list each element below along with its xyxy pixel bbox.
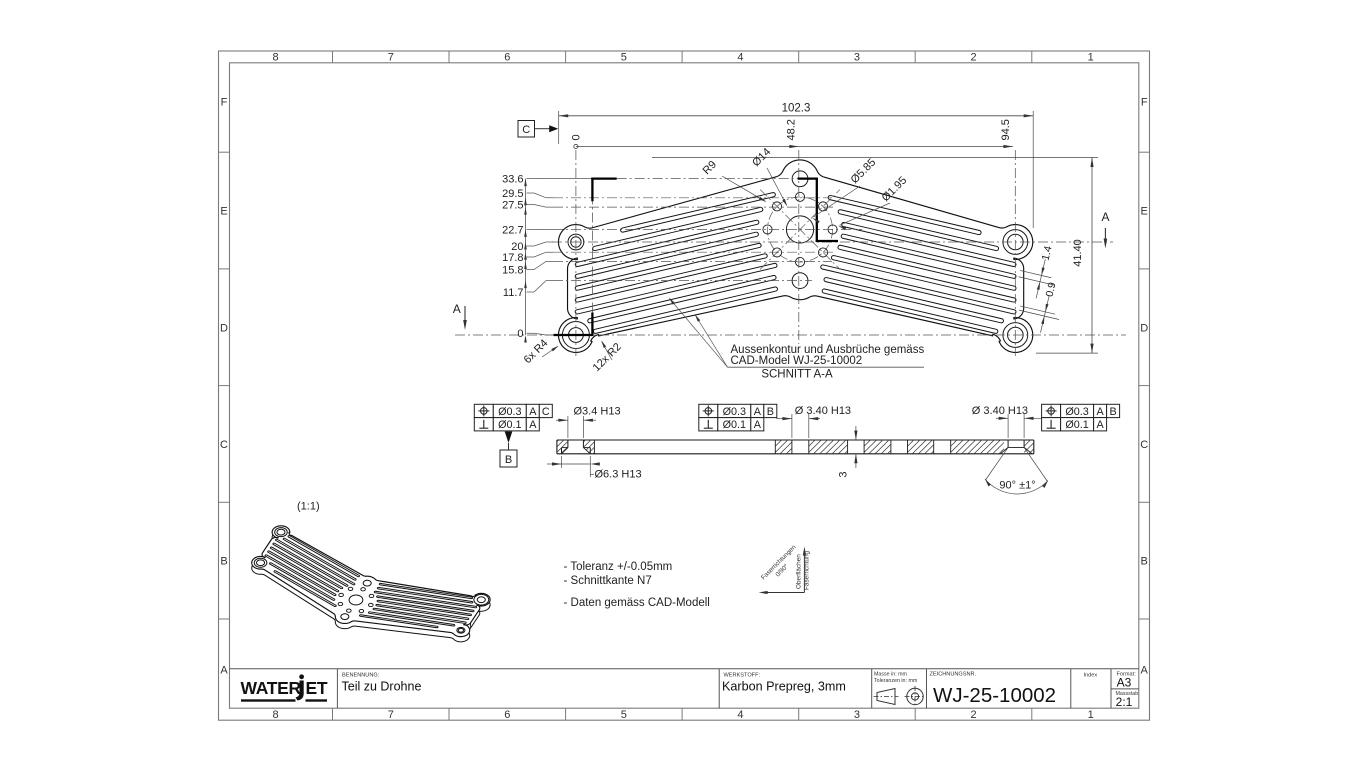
svg-text:48.2: 48.2	[786, 119, 798, 140]
svg-text:Masse in: mm: Masse in: mm	[874, 672, 908, 678]
svg-text:17.8: 17.8	[502, 252, 523, 264]
svg-text:Ø0.1: Ø0.1	[723, 419, 746, 431]
svg-text:(1:1): (1:1)	[297, 501, 320, 513]
svg-text:Index: Index	[1084, 673, 1098, 679]
svg-text:- Toleranz +/-0.05mm: - Toleranz +/-0.05mm	[564, 561, 673, 573]
svg-text:41.40: 41.40	[1072, 239, 1084, 267]
svg-text:A: A	[1141, 665, 1149, 677]
svg-text:Teil zu Drohne: Teil zu Drohne	[342, 680, 422, 694]
svg-text:29.5: 29.5	[502, 188, 523, 200]
svg-text:2:1: 2:1	[1116, 695, 1133, 709]
svg-text:B: B	[220, 556, 227, 568]
svg-text:Toleranzen in: mm: Toleranzen in: mm	[874, 678, 918, 684]
svg-text:D: D	[220, 322, 228, 334]
svg-text:15.8: 15.8	[502, 264, 523, 276]
svg-text:7: 7	[388, 52, 394, 64]
svg-text:3: 3	[854, 52, 860, 64]
svg-text:A3: A3	[1117, 676, 1132, 690]
svg-text:A: A	[529, 406, 537, 418]
svg-text:6: 6	[504, 709, 510, 721]
svg-text:B: B	[1109, 406, 1116, 418]
svg-text:Ø0.3: Ø0.3	[498, 406, 521, 418]
svg-text:B: B	[767, 406, 774, 418]
svg-text:5: 5	[621, 709, 627, 721]
svg-text:5: 5	[621, 52, 627, 64]
svg-text:0: 0	[571, 134, 583, 140]
svg-text:CAD-Model WJ-25-10002: CAD-Model WJ-25-10002	[731, 355, 863, 367]
svg-text:Ø 3.40 H13: Ø 3.40 H13	[972, 405, 1028, 417]
svg-text:A: A	[754, 419, 762, 431]
svg-text:A: A	[220, 665, 228, 677]
svg-text:3: 3	[838, 471, 850, 477]
svg-text:1: 1	[1088, 709, 1094, 721]
svg-text:0: 0	[517, 328, 523, 340]
svg-text:102.3: 102.3	[782, 103, 811, 115]
svg-text:B: B	[1141, 556, 1148, 568]
svg-text:WATER: WATER	[241, 678, 302, 698]
svg-text:A: A	[453, 302, 461, 316]
svg-text:7: 7	[388, 709, 394, 721]
svg-text:Ø0.1: Ø0.1	[498, 419, 521, 431]
svg-text:ET: ET	[306, 678, 328, 698]
svg-text:D: D	[1140, 322, 1148, 334]
svg-text:8: 8	[272, 52, 278, 64]
svg-text:A: A	[754, 406, 762, 418]
svg-text:33.6: 33.6	[502, 173, 523, 185]
svg-text:Ø0.3: Ø0.3	[723, 406, 746, 418]
svg-text:22.7: 22.7	[502, 224, 523, 236]
svg-text:2: 2	[970, 52, 976, 64]
svg-text:WERKSTOFF:: WERKSTOFF:	[724, 673, 761, 679]
svg-text:C: C	[220, 439, 228, 451]
svg-text:WJ-25-10002: WJ-25-10002	[933, 684, 1056, 707]
svg-text:Faserrichtung: Faserrichtung	[804, 550, 811, 590]
svg-text:27.5: 27.5	[502, 199, 523, 211]
svg-text:E: E	[220, 206, 227, 218]
svg-text:3: 3	[854, 709, 860, 721]
svg-text:4: 4	[737, 52, 743, 64]
svg-text:A: A	[1096, 406, 1104, 418]
svg-text:Ø 3.40 H13: Ø 3.40 H13	[795, 405, 851, 417]
svg-text:E: E	[1141, 206, 1148, 218]
svg-text:2: 2	[970, 709, 976, 721]
svg-text:90° ±1°: 90° ±1°	[999, 480, 1035, 492]
svg-text:A: A	[1102, 210, 1110, 224]
svg-text:C: C	[522, 124, 530, 136]
svg-text:C: C	[1140, 439, 1148, 451]
svg-text:1: 1	[1088, 52, 1094, 64]
svg-text:Ø0.3: Ø0.3	[1065, 406, 1088, 418]
svg-text:11.7: 11.7	[503, 287, 524, 299]
svg-text:C: C	[542, 406, 550, 418]
svg-text:F: F	[221, 97, 228, 109]
svg-text:Ø0.1: Ø0.1	[1065, 419, 1088, 431]
svg-text:Ø3.4 H13: Ø3.4 H13	[574, 406, 621, 418]
svg-text:4: 4	[737, 709, 743, 721]
svg-text:Ø6.3 H13: Ø6.3 H13	[595, 469, 642, 481]
svg-text:Oberflächen: Oberflächen	[796, 554, 803, 589]
svg-text:Karbon Prepreg, 3mm: Karbon Prepreg, 3mm	[722, 680, 846, 694]
svg-text:- Schnittkante N7: - Schnittkante N7	[564, 575, 652, 587]
svg-text:F: F	[1141, 97, 1148, 109]
svg-text:ZEICHNUNGSNR.: ZEICHNUNGSNR.	[930, 672, 977, 678]
svg-text:A: A	[529, 419, 537, 431]
svg-text:94.5: 94.5	[1000, 119, 1012, 140]
svg-text:SCHNITT A-A: SCHNITT A-A	[761, 369, 833, 381]
svg-text:- Daten gemäss CAD-Modell: - Daten gemäss CAD-Modell	[564, 597, 710, 609]
svg-text:A: A	[1096, 419, 1104, 431]
svg-text:8: 8	[272, 709, 278, 721]
svg-text:BENENNUNG:: BENENNUNG:	[342, 673, 380, 679]
svg-text:6: 6	[504, 52, 510, 64]
svg-text:B: B	[505, 454, 512, 466]
